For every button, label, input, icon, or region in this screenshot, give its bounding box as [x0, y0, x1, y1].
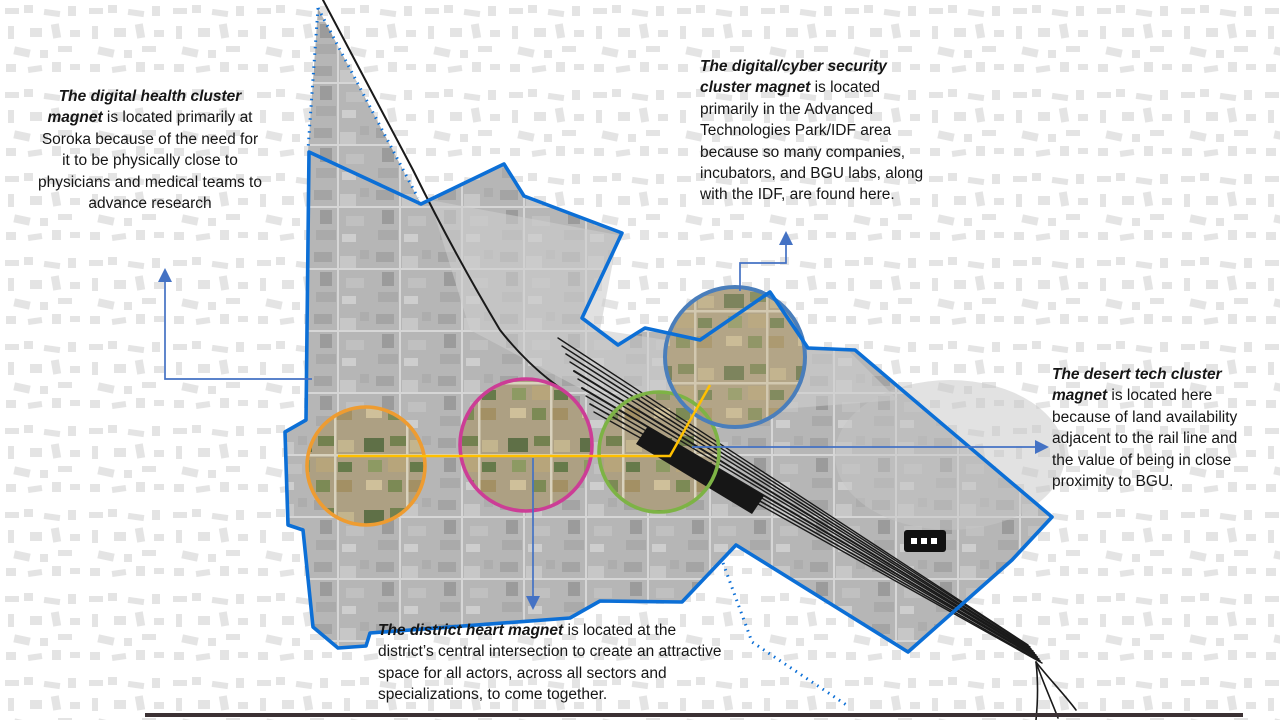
district-heart-annotation-lead: The district heart magnet: [378, 622, 563, 639]
cyber-security-annotation-body: is located primarily in the Advanced Tec…: [700, 79, 923, 203]
slide: The digital health cluster magnet is loc…: [0, 0, 1280, 720]
district-heart-annotation: The district heart magnet is located at …: [378, 620, 726, 706]
desert-tech-annotation: The desert tech cluster magnet is locate…: [1052, 364, 1260, 492]
station-icon: [904, 530, 946, 552]
cyber-security-annotation: The digital/cyber security cluster magne…: [700, 56, 940, 206]
digital-health-annotation: The digital health cluster magnet is loc…: [36, 86, 264, 214]
bottom-rule: [145, 713, 1243, 717]
